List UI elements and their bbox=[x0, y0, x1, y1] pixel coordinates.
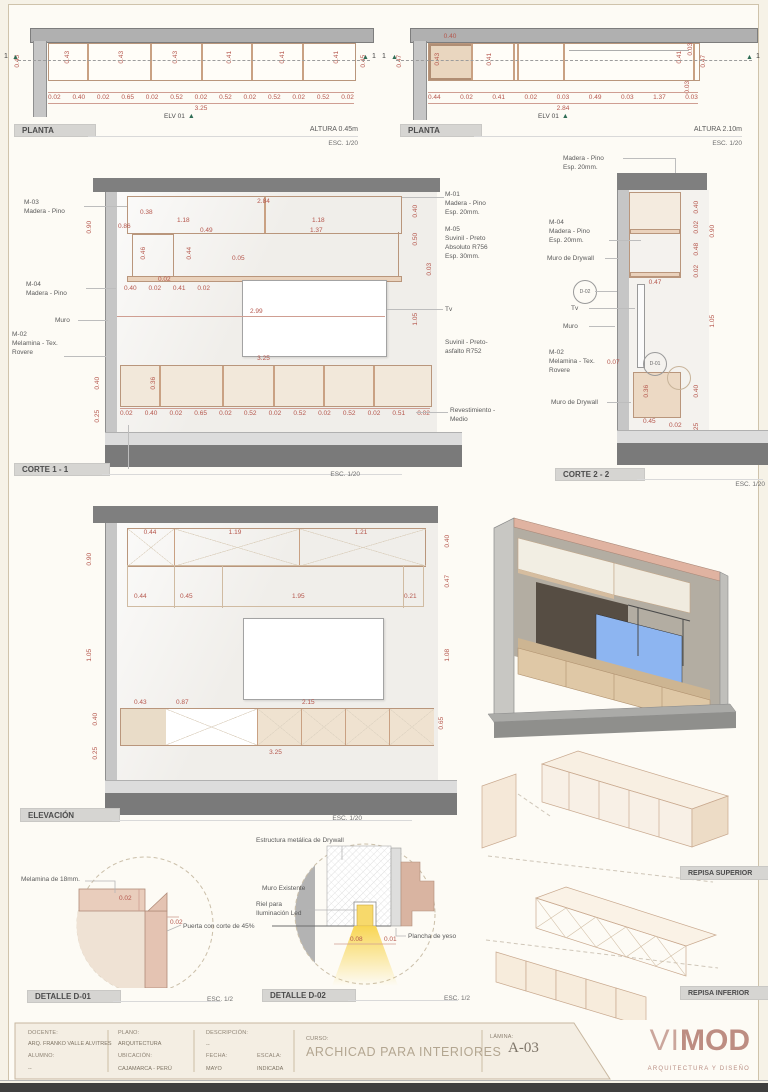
sheet-canvas: { "colors":{"dim":"#b5564c","wood_line":… bbox=[0, 0, 768, 1092]
section-marker-number: 1 bbox=[372, 53, 376, 60]
x-brace bbox=[626, 936, 656, 957]
dim-value: 0.46 bbox=[141, 247, 148, 260]
plan-wall-column bbox=[413, 41, 427, 120]
dim-total: 2.84 bbox=[428, 106, 698, 113]
scale-label: ESC. 1/20 bbox=[306, 140, 358, 147]
material-label: Madera - Pino Esp. 20mm. bbox=[563, 154, 625, 172]
right-panel bbox=[720, 572, 728, 714]
dim-value: 0.01 bbox=[384, 937, 397, 944]
view-title: DETALLE D-02 bbox=[270, 991, 326, 1000]
x-brace bbox=[566, 917, 596, 938]
dim-value: 0.41 bbox=[334, 51, 341, 64]
x-brace bbox=[596, 927, 626, 947]
cabinet-door bbox=[389, 709, 434, 745]
material-label: M-01 Madera - Pino Esp. 20mm. bbox=[445, 190, 511, 217]
cabinet-divider bbox=[159, 366, 161, 406]
view-title-chip: PLANTA bbox=[400, 124, 482, 137]
title-rule bbox=[637, 479, 763, 480]
tv bbox=[242, 280, 387, 357]
dim-value: 0.36 bbox=[151, 377, 158, 390]
logo-mod: MOD bbox=[680, 1024, 750, 1057]
dim-value: 0.02 bbox=[318, 411, 331, 418]
cabinet-divider bbox=[273, 366, 275, 406]
dim-value: 0.02 bbox=[148, 286, 161, 293]
dim-value: 0.02 bbox=[460, 95, 473, 102]
dim-value: 0.02 bbox=[269, 411, 282, 418]
melamina-label: Melamina de 18mm. bbox=[21, 875, 80, 884]
dim-value: 0.02 bbox=[341, 95, 354, 102]
dim-value: 0.40 bbox=[434, 34, 466, 41]
dim-value: 0.44 bbox=[134, 594, 147, 601]
plan-bottom-dims: 0.440.020.410.020.030.490.031.370.03 bbox=[428, 95, 698, 102]
dim-value: 0.07 bbox=[607, 360, 620, 367]
lamina-value: A-03 bbox=[508, 1040, 539, 1057]
leader-line bbox=[86, 288, 116, 289]
frame-top bbox=[536, 887, 716, 946]
cabinet-divider bbox=[174, 566, 175, 608]
section-marker-number: 1 bbox=[382, 53, 386, 60]
estructura-label: Estructura metálica de Drywall bbox=[256, 836, 344, 845]
leader-line bbox=[78, 320, 108, 321]
dim-value: 0.41 bbox=[677, 51, 684, 64]
view-repisa-superior bbox=[478, 736, 768, 886]
cabinet-divider bbox=[222, 566, 223, 608]
material-label: M-03 Madera - Pino bbox=[24, 198, 86, 216]
plano-label: PLANO: bbox=[118, 1030, 139, 1036]
cabinet-divider bbox=[471, 44, 473, 80]
dim-value: 0.52 bbox=[293, 411, 306, 418]
dim-value: 0.65 bbox=[121, 95, 134, 102]
back-panel bbox=[482, 774, 516, 848]
leader-line bbox=[675, 158, 676, 174]
section-marker-icon: ▲ bbox=[362, 54, 369, 61]
upper-cabinet-box bbox=[132, 234, 174, 280]
upper-cabinet-section bbox=[629, 192, 681, 278]
dim-value: 0.40 bbox=[694, 385, 701, 398]
ubicacion-label: UBICACIÓN: bbox=[118, 1053, 152, 1059]
dim-value: 0.02 bbox=[292, 95, 305, 102]
dim-value: 0.03 bbox=[621, 95, 634, 102]
repisa-inferior-chip: REPISA INFERIOR bbox=[680, 986, 768, 1000]
curso-value: ARCHICAD PARA INTERIORES bbox=[306, 1045, 501, 1059]
dim-value: 0.02 bbox=[669, 423, 682, 430]
dim-value: 0.38 bbox=[140, 210, 153, 217]
section-marker-number: 1 bbox=[756, 53, 760, 60]
dim-value: 1.05 bbox=[710, 315, 717, 328]
ceiling-slab bbox=[93, 178, 440, 192]
melamine-slab bbox=[79, 889, 145, 911]
door-45-bevel bbox=[148, 893, 167, 911]
material-label: M-02 Melamina - Tex. Rovere bbox=[549, 348, 613, 375]
alumno-value: -- bbox=[28, 1066, 32, 1072]
view-detalle-d02: Estructura metálica de Drywall Muro Exis… bbox=[250, 836, 475, 1010]
dim-total: 3.25 bbox=[48, 106, 354, 113]
scale-label: ESC. 1/20 bbox=[690, 140, 742, 147]
docente-value: ARQ. FRANKO VALLE ALVITRES bbox=[28, 1041, 112, 1047]
shelf bbox=[630, 272, 680, 277]
dim-value: 1.37 bbox=[653, 95, 666, 102]
material-label: Suvinil - Preto- asfalto R752 bbox=[445, 338, 513, 356]
leader-line bbox=[128, 425, 129, 469]
plan-wall bbox=[30, 28, 374, 43]
dim-value: 0.02 bbox=[120, 411, 133, 418]
floor-slab bbox=[105, 793, 457, 815]
cabinet-divider bbox=[150, 44, 152, 80]
dim-value: 0.40 bbox=[445, 535, 452, 548]
scale-label: ESC. 1/2 bbox=[418, 995, 470, 1002]
shelf bbox=[630, 229, 680, 234]
escala-label: ESCALA: bbox=[257, 1053, 282, 1059]
dim-line bbox=[120, 408, 430, 409]
dim-value: 0.41 bbox=[492, 95, 505, 102]
dim-value: 0.40 bbox=[145, 411, 158, 418]
dim-value: 0.05 bbox=[232, 256, 245, 263]
scale-label: ESC. 1/20 bbox=[312, 815, 362, 822]
tv bbox=[243, 618, 384, 700]
leader-line bbox=[64, 356, 106, 357]
dim-value: 1.08 bbox=[445, 649, 452, 662]
dim-value: 2.84 bbox=[127, 199, 400, 206]
dim-value: 0.45 bbox=[643, 419, 656, 426]
elevation-marker-icon: ▲ bbox=[562, 113, 569, 120]
second-cabinet-band bbox=[127, 565, 424, 607]
view-title-chip: CORTE 2 - 2 bbox=[555, 468, 645, 481]
dim-value: 0.50 bbox=[413, 233, 420, 246]
dim-value: 0.52 bbox=[170, 95, 183, 102]
ceiling-slab bbox=[93, 506, 438, 523]
view-title-chip: DETALLE D-01 bbox=[27, 990, 121, 1003]
wall-finish-step bbox=[401, 862, 434, 926]
small-dim-row: 0.400.020.410.02 bbox=[124, 286, 210, 293]
leader-line bbox=[623, 158, 675, 159]
plan-centerline bbox=[18, 60, 370, 61]
descripcion-value: -- bbox=[206, 1042, 210, 1048]
light-cone bbox=[332, 926, 398, 986]
view-detalle-d01: Melamina de 18mm. 0.02 0.02 Puerta con c… bbox=[15, 843, 250, 1011]
led-rail-line bbox=[569, 50, 689, 51]
title-rule bbox=[88, 136, 358, 137]
leader-line bbox=[402, 197, 444, 198]
bottom-rule bbox=[0, 1080, 768, 1081]
dim-value: 1.05 bbox=[413, 313, 420, 326]
dim-value: 0.52 bbox=[244, 411, 257, 418]
plasterboard bbox=[391, 848, 401, 926]
riel-label: Riel para Iluminación Led bbox=[256, 900, 312, 918]
plan-wall-column bbox=[33, 41, 47, 117]
view-planta-045: 0.45 0.45 0.430.430.430.410.410.41 1 ▲ ▲… bbox=[14, 24, 374, 148]
fecha-value: MAYO bbox=[206, 1066, 222, 1072]
material-label: Muro de Drywall bbox=[547, 254, 609, 263]
detail-callout-d02: D-02 bbox=[573, 280, 597, 304]
vimod-logo: VIMOD bbox=[614, 1024, 750, 1058]
leader-line bbox=[416, 412, 448, 413]
dim-value: 0.65 bbox=[439, 717, 446, 730]
dim-value: 1.37 bbox=[310, 228, 323, 235]
cabinet-divider bbox=[201, 44, 203, 80]
x-brace bbox=[656, 946, 686, 966]
section-marker-icon: ▲ bbox=[391, 54, 398, 61]
dim-value: 1.21 bbox=[341, 530, 381, 537]
title-rule bbox=[474, 136, 742, 137]
cabinet-divider bbox=[251, 44, 253, 80]
dim-value: 0.65 bbox=[194, 411, 207, 418]
dim-value: 2.15 bbox=[302, 700, 315, 707]
door-panel bbox=[526, 961, 556, 1000]
view-title-chip: PLANTA bbox=[14, 124, 96, 137]
bottom-bar bbox=[0, 1083, 768, 1092]
door-panel bbox=[586, 979, 616, 1018]
leader-line bbox=[387, 309, 443, 310]
altura-label: ALTURA 0.45m bbox=[224, 125, 358, 135]
dim-value: 0.44 bbox=[428, 95, 441, 102]
dim-value: 0.02 bbox=[244, 95, 257, 102]
dim-value: 0.40 bbox=[72, 95, 85, 102]
dim-value: 0.02 bbox=[146, 95, 159, 102]
view-elevacion: 0.44 1.19 1.21 0.44 0.45 1.95 0.21 0.90 … bbox=[12, 498, 464, 832]
dim-value: 0.02 bbox=[195, 95, 208, 102]
side-wall bbox=[494, 518, 514, 722]
view-title: CORTE 1 - 1 bbox=[22, 465, 68, 474]
dim-value: 0.49 bbox=[200, 228, 213, 235]
plancha-label: Plancha de yeso bbox=[408, 932, 456, 941]
view-axonometric-3d bbox=[478, 486, 768, 744]
dim-value: 0.87 bbox=[176, 700, 189, 707]
plan-bottom-dims: 0.020.400.020.650.020.520.020.520.020.52… bbox=[48, 95, 354, 102]
led-rail bbox=[357, 905, 373, 926]
cabinet-panel bbox=[121, 709, 166, 745]
cabinet-divider bbox=[222, 366, 224, 406]
view-title-chip: DETALLE D-02 bbox=[262, 989, 356, 1002]
x-brace bbox=[536, 908, 566, 928]
plano-value: ARQUITECTURA bbox=[118, 1041, 161, 1047]
cabinet-divider bbox=[517, 44, 519, 80]
tv-label: Tv bbox=[571, 304, 589, 313]
dim-value: 0.02 bbox=[119, 896, 132, 903]
dim-value: 0.02 bbox=[524, 95, 537, 102]
view-corte-1-1: 2.84 0.38 1.18 1.18 0.86 0.46 0.44 0.49 … bbox=[12, 170, 514, 482]
dim-line bbox=[117, 316, 385, 317]
dim-value: 0.49 bbox=[589, 95, 602, 102]
dim-value: 0.03 bbox=[688, 43, 695, 56]
material-label: M-04 Madera - Pino bbox=[26, 280, 88, 298]
dim-value: 0.90 bbox=[710, 225, 717, 238]
dim-value: 0.02 bbox=[158, 277, 171, 284]
dim-value: 1.19 bbox=[215, 530, 255, 537]
material-label: M-05 Suvinil - Preto Absoluto R756 Esp. … bbox=[445, 225, 511, 261]
axonometric-svg bbox=[478, 486, 768, 744]
dim-value: 0.52 bbox=[317, 95, 330, 102]
dim-value: 1.18 bbox=[177, 218, 190, 225]
material-label: M-04 Madera - Pino Esp. 20mm. bbox=[549, 218, 611, 245]
dim-line bbox=[48, 92, 354, 93]
elevation-marker-icon: ▲ bbox=[188, 113, 195, 120]
dim-value: 0.52 bbox=[219, 95, 232, 102]
elevation-marker-label: ELV 01 bbox=[164, 113, 185, 120]
dim-value: 0.90 bbox=[87, 221, 94, 234]
floor-slab bbox=[617, 443, 768, 465]
dim-value: 0.08 bbox=[350, 937, 363, 944]
detail-callout-label: D-01 bbox=[650, 361, 661, 367]
dim-value: 0.25 bbox=[95, 410, 102, 423]
cabinet-divider bbox=[513, 44, 515, 80]
dim-value: 0.52 bbox=[343, 411, 356, 418]
dim-value: 2.99 bbox=[250, 309, 263, 316]
dim-value: 0.02 bbox=[97, 95, 110, 102]
section-marker-icon: ▲ bbox=[12, 54, 19, 61]
view-title: DETALLE D-01 bbox=[35, 992, 91, 1001]
dim-value: 1.95 bbox=[292, 594, 305, 601]
plan-cabinet bbox=[428, 43, 700, 81]
leader-line bbox=[84, 206, 127, 207]
dim-value: 0.03 bbox=[685, 95, 698, 102]
escala-value: INDICADA bbox=[257, 1066, 283, 1072]
cabinet-divider bbox=[323, 366, 325, 406]
dim-value: 0.43 bbox=[65, 51, 72, 64]
leader-line bbox=[607, 402, 631, 403]
dim-value: 0.47 bbox=[701, 55, 708, 68]
leader-line bbox=[609, 240, 641, 241]
title-rule bbox=[112, 820, 412, 821]
elevation-marker: ELV 01▲ bbox=[164, 113, 195, 120]
muro-existente-label: Muro Existente bbox=[262, 884, 305, 893]
dim-value: 0.40 bbox=[93, 713, 100, 726]
view-title-chip: ELEVACIÓN bbox=[20, 808, 120, 822]
cabinet-divider bbox=[373, 366, 375, 406]
material-label: Tv bbox=[445, 305, 475, 314]
dim-value: 0.43 bbox=[134, 700, 147, 707]
cabinet-fill bbox=[630, 193, 680, 229]
dim-value: 0.02 bbox=[170, 411, 183, 418]
dim-line bbox=[428, 103, 698, 104]
elevation-marker-label: ELV 01 bbox=[538, 113, 559, 120]
view-title: ELEVACIÓN bbox=[28, 811, 74, 820]
dim-value: 0.02 bbox=[368, 411, 381, 418]
dim-value: 0.41 bbox=[173, 286, 186, 293]
repisa-superior-label: REPISA SUPERIOR bbox=[688, 870, 752, 877]
dim-value: 0.25 bbox=[93, 747, 100, 760]
cabinet-door bbox=[345, 709, 390, 745]
cabinet-door bbox=[301, 709, 346, 745]
leader-line bbox=[605, 258, 619, 259]
dim-value: 1.05 bbox=[87, 649, 94, 662]
detail-callout-label: D-02 bbox=[580, 289, 591, 295]
view-planta-210: 0.40 0.47 0.43 0.41 0.41 0.03 0.47 0.03 … bbox=[398, 24, 762, 148]
dim-value: 0.40 bbox=[413, 205, 420, 218]
dim-value: 0.44 bbox=[130, 530, 170, 537]
plan-centerline bbox=[396, 60, 752, 61]
dim-value: 0.90 bbox=[87, 553, 94, 566]
scale-label: ESC. 1/20 bbox=[312, 471, 360, 478]
door-panel bbox=[616, 988, 646, 1020]
docente-label: DOCENTE: bbox=[28, 1030, 58, 1036]
cabinet-divider bbox=[403, 566, 404, 608]
cabinet-divider bbox=[563, 44, 565, 80]
dim-value: 0.86 bbox=[118, 224, 131, 231]
detail-circle bbox=[667, 366, 691, 390]
dim-value: 0.40 bbox=[124, 286, 137, 293]
alumno-label: ALUMNO: bbox=[28, 1053, 54, 1059]
fecha-label: FECHA: bbox=[206, 1053, 227, 1059]
dim-value: 0.36 bbox=[644, 385, 651, 398]
dim-value: 0.41 bbox=[281, 51, 288, 64]
material-label: M-02 Melamina - Tex. Rovere bbox=[12, 330, 82, 357]
dim-value: 0.51 bbox=[392, 411, 405, 418]
dim-value: 0.03 bbox=[427, 263, 434, 276]
section-marker-icon: ▲ bbox=[746, 54, 753, 61]
cabinet-divider bbox=[87, 44, 89, 80]
dim-value: 0.02 bbox=[197, 286, 210, 293]
dim-value: 0.43 bbox=[173, 51, 180, 64]
cabinet-side-line bbox=[398, 232, 399, 276]
dim-value: 0.21 bbox=[404, 594, 417, 601]
view-title: CORTE 2 - 2 bbox=[563, 470, 609, 479]
floor-slab bbox=[105, 445, 462, 467]
leader-line bbox=[396, 928, 406, 936]
dim-value: 0.45 bbox=[180, 594, 193, 601]
door-panel bbox=[145, 911, 167, 988]
altura-label: ALTURA 2.10m bbox=[608, 125, 742, 135]
dim-value: 0.02 bbox=[694, 221, 701, 234]
dim-value: 0.47 bbox=[397, 55, 404, 68]
detail-callout-d01: D-01 bbox=[643, 352, 667, 376]
view-corte-2-2: Madera - Pino Esp. 20mm. 0.40 0.02 0.48 … bbox=[545, 148, 768, 488]
scale-label: ESC. 1/2 bbox=[181, 996, 233, 1003]
dim-value: 0.02 bbox=[48, 95, 61, 102]
dim-value: 0.41 bbox=[227, 51, 234, 64]
door-panel bbox=[496, 952, 526, 991]
repisa-inferior-label: REPISA INFERIOR bbox=[688, 990, 749, 997]
view-title: PLANTA bbox=[408, 126, 440, 135]
dim-value: 0.43 bbox=[119, 51, 126, 64]
view-title: PLANTA bbox=[22, 126, 54, 135]
dim-value: 0.48 bbox=[694, 243, 701, 256]
bottom-dims: 0.020.400.020.650.020.520.020.520.020.52… bbox=[120, 411, 430, 418]
top-cabinet-band bbox=[127, 528, 426, 567]
dim-value: 0.52 bbox=[268, 95, 281, 102]
dim-value: 0.02 bbox=[694, 265, 701, 278]
title-block: DOCENTE: ARQ. FRANKO VALLE ALVITRES ALUM… bbox=[14, 1022, 754, 1080]
material-label: Muro de Drywall bbox=[551, 398, 611, 407]
door-panel bbox=[556, 970, 586, 1009]
dim-value: 0.02 bbox=[170, 920, 183, 927]
lower-cabinet bbox=[120, 708, 434, 746]
leader-line bbox=[589, 326, 615, 327]
dim-value: 1.18 bbox=[312, 218, 325, 225]
plan-cabinet bbox=[48, 43, 356, 81]
curso-label: CURSO: bbox=[306, 1036, 329, 1042]
dim-value: 0.47 bbox=[445, 575, 452, 588]
dim-value: 0.44 bbox=[187, 247, 194, 260]
descripcion-label: DESCRIPCIÓN: bbox=[206, 1030, 248, 1036]
lower-cabinet bbox=[120, 365, 432, 407]
dim-line bbox=[48, 103, 354, 104]
dim-value: 0.40 bbox=[694, 201, 701, 214]
carcass-body bbox=[77, 911, 145, 988]
open-bay bbox=[166, 709, 257, 745]
muro-label: Muro bbox=[563, 322, 589, 331]
dim-total: 3.25 bbox=[127, 750, 424, 757]
repisa-superior-svg bbox=[478, 736, 768, 886]
cabinet-divider bbox=[302, 44, 304, 80]
dim-total: 3.25 bbox=[127, 356, 400, 363]
leader-line bbox=[589, 308, 635, 309]
puerta-label: Puerta con corte de 45% bbox=[183, 922, 255, 931]
dim-value: 0.03 bbox=[557, 95, 570, 102]
section-marker-number: 1 bbox=[4, 53, 8, 60]
dim-value: 0.40 bbox=[95, 377, 102, 390]
detalle-d01-svg bbox=[15, 843, 250, 988]
elevation-marker: ELV 01▲ bbox=[538, 113, 569, 120]
